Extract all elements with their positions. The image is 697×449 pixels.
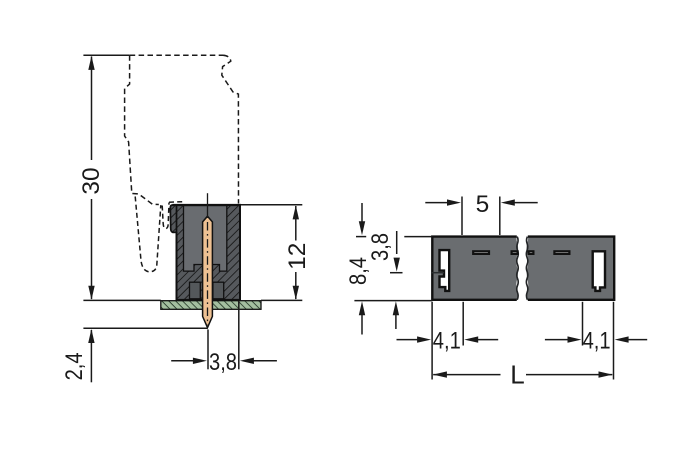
svg-text:4,1: 4,1 (583, 327, 611, 354)
svg-text:L: L (510, 360, 524, 390)
svg-text:12: 12 (284, 243, 311, 270)
svg-text:5: 5 (476, 191, 490, 218)
svg-text:3,8: 3,8 (209, 349, 237, 376)
svg-text:30: 30 (78, 167, 105, 194)
svg-text:3,8: 3,8 (367, 233, 394, 261)
svg-text:4,1: 4,1 (433, 327, 461, 354)
svg-text:2,4: 2,4 (61, 352, 88, 380)
